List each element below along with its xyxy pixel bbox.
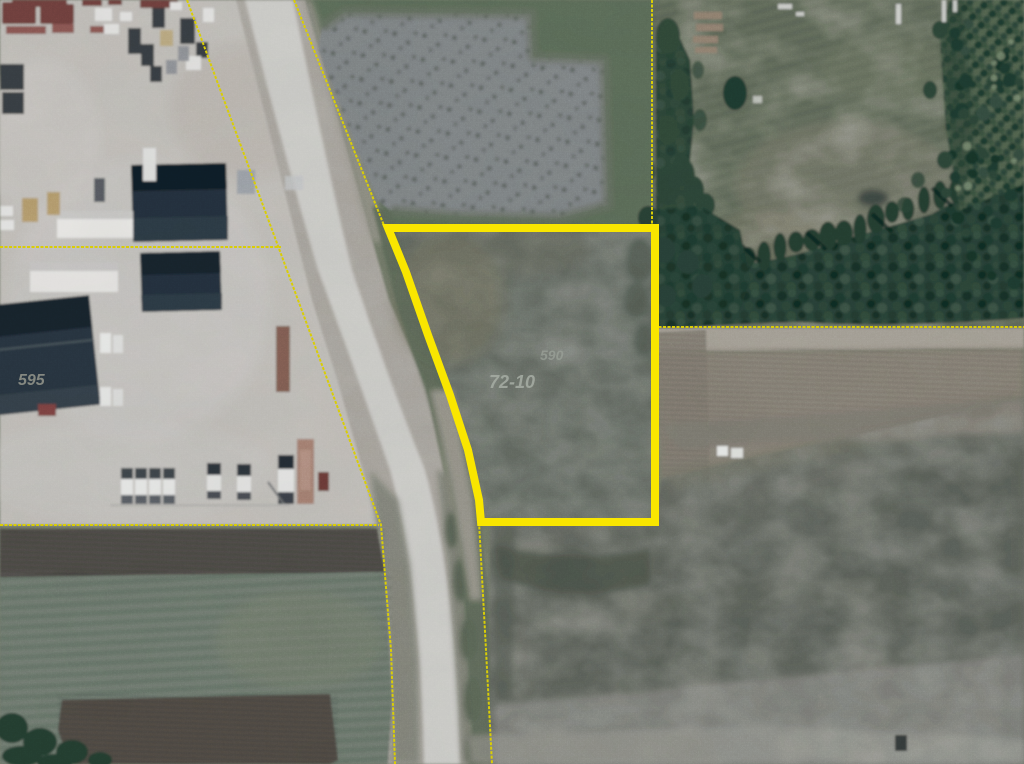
svg-text:590: 590 — [540, 347, 564, 363]
svg-text:72-10: 72-10 — [489, 372, 535, 392]
svg-text:595: 595 — [18, 372, 46, 389]
